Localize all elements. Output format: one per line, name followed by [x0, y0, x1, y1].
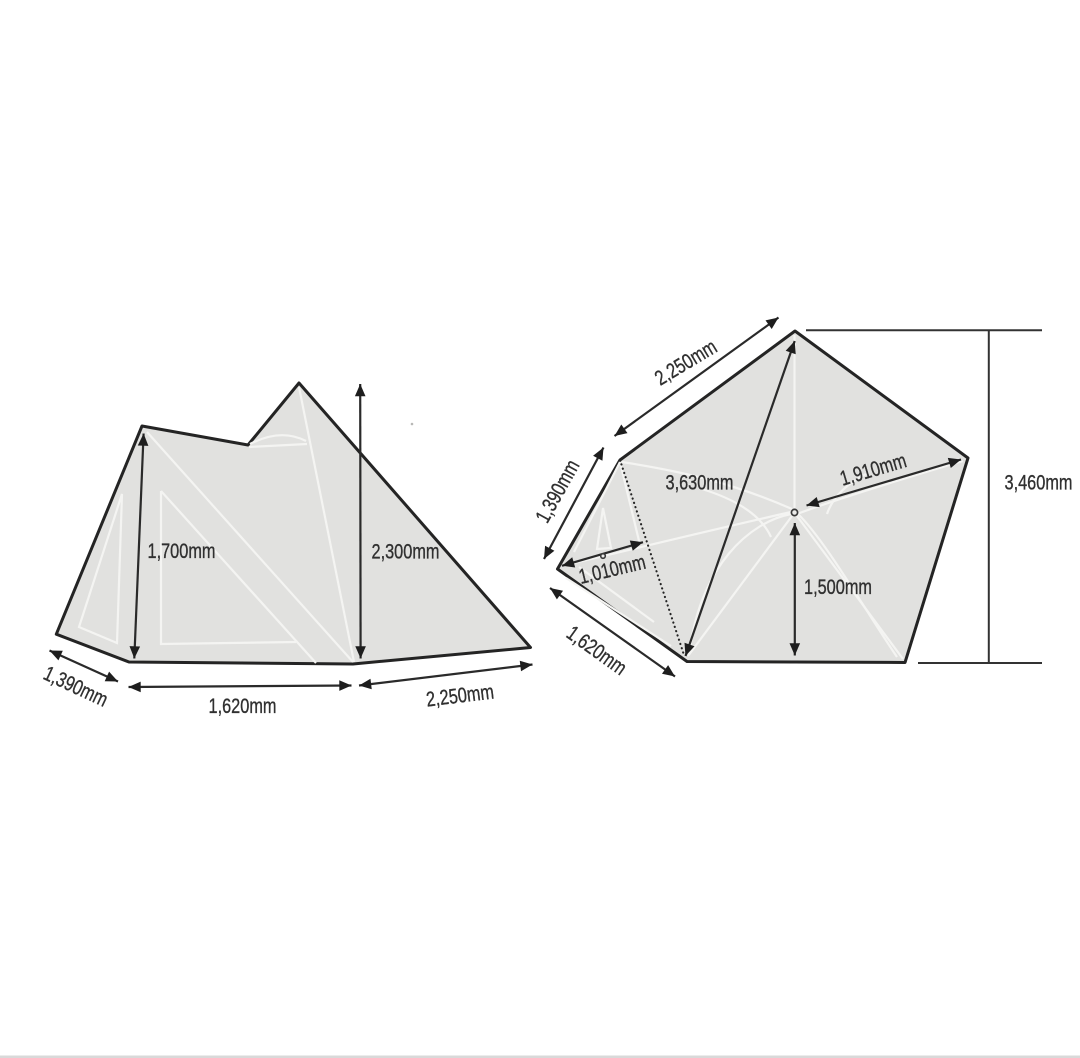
svg-text:3,630mm: 3,630mm — [666, 472, 734, 495]
svg-text:1,700mm: 1,700mm — [148, 540, 216, 563]
svg-text:3,460mm: 3,460mm — [1005, 472, 1073, 495]
svg-text:1,500mm: 1,500mm — [804, 576, 872, 599]
svg-text:1,620mm: 1,620mm — [209, 695, 277, 718]
svg-text:2,300mm: 2,300mm — [372, 541, 440, 564]
